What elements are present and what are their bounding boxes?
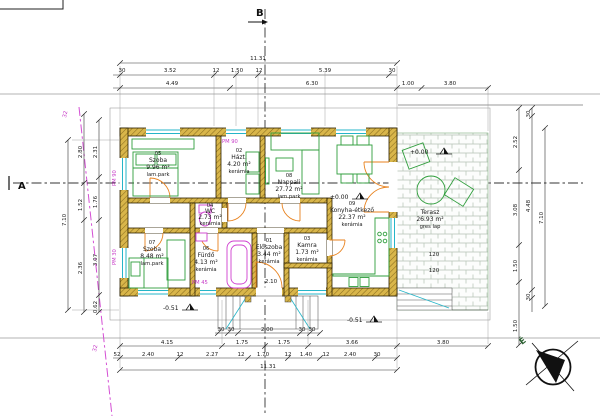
terrace-steps xyxy=(397,288,452,310)
level-front: -0.51 xyxy=(163,305,179,312)
room-label-kamra: 03 Kamra 1.73 m² kerámia xyxy=(295,236,319,263)
svg-text:1.73 m²: 1.73 m² xyxy=(295,249,319,256)
section-marker-b: B xyxy=(256,8,264,19)
dim-label: 12 xyxy=(323,352,330,358)
dim-label: 2.40 xyxy=(344,352,357,358)
dim-label: 1.50 xyxy=(513,319,519,332)
pm-label-bottom: PM 45 xyxy=(192,280,208,286)
svg-text:kerámia: kerámia xyxy=(229,168,250,175)
dim-label: 120 xyxy=(429,268,440,274)
level-kitchen: ±0.00 xyxy=(330,194,349,201)
dim-label: 5.39 xyxy=(319,68,332,74)
dim-label: 2.27 xyxy=(206,352,219,358)
dim-label: 11.31 xyxy=(260,364,276,370)
boundary-dim-upper: 32 xyxy=(62,110,69,118)
dim-label: 7.10 xyxy=(62,213,68,226)
dim-label: 4.15 xyxy=(161,340,174,346)
dim-label: 6.30 xyxy=(306,81,319,87)
svg-text:8.48 m²: 8.48 m² xyxy=(140,253,164,260)
svg-text:Házt.: Házt. xyxy=(231,154,247,161)
washbasin-icon xyxy=(196,233,207,241)
room-label-nappali: 08 Nappali 27.72 m² lam.park xyxy=(275,173,303,200)
dim-label: 1.76 xyxy=(93,195,99,208)
dim-label: 30 xyxy=(299,327,306,333)
dim-label: 0.62 xyxy=(93,301,99,313)
dim-label: 12 xyxy=(256,68,263,74)
dim-label: 30 xyxy=(374,352,381,358)
svg-text:lam.park: lam.park xyxy=(141,261,164,267)
svg-text:kerámia: kerámia xyxy=(297,256,318,263)
tv-cabinet-icon xyxy=(266,158,270,184)
dim-label: 4.48 xyxy=(526,199,532,212)
door-utility-icon xyxy=(228,203,246,221)
kitchen-counter-icon xyxy=(333,218,389,287)
dim-label: 11.31 xyxy=(250,56,266,62)
dim-label: 30 xyxy=(119,68,126,74)
svg-text:Fürdő: Fürdő xyxy=(198,252,215,259)
dim-label: 2.80 xyxy=(78,145,84,158)
pm-label-left-upper: PM 90 xyxy=(112,170,118,186)
dim-label: 1.75 xyxy=(278,340,291,346)
door-living-icon xyxy=(282,203,300,221)
dim-label: 3.08 xyxy=(513,203,519,216)
dim-label: 30 xyxy=(218,327,225,333)
site-lines xyxy=(0,0,600,338)
boundary-dim-lower: 32 xyxy=(92,344,99,352)
dim-label: 2.52 xyxy=(513,136,519,148)
dim-label: 1.00 xyxy=(402,81,415,87)
svg-text:Konyha-étkező: Konyha-étkező xyxy=(330,207,374,214)
level-symbol-icon xyxy=(352,193,368,199)
dim-label: 30 xyxy=(309,327,316,333)
dim-label: 3.80 xyxy=(444,81,457,87)
dim-label: 2.40 xyxy=(142,352,155,358)
svg-text:lam.park: lam.park xyxy=(278,194,301,200)
svg-text:4.20 m²: 4.20 m² xyxy=(227,161,251,168)
dim-label: 1.40 xyxy=(300,352,313,358)
dim-label: 30 xyxy=(228,327,235,333)
svg-text:9.96 m²: 9.96 m² xyxy=(146,164,170,171)
pm-label-left-lower: PM 30 xyxy=(112,249,118,265)
dim-label: 7.10 xyxy=(539,211,545,224)
dim-label: 3.07 xyxy=(93,253,99,266)
svg-text:Előszoba: Előszoba xyxy=(256,244,283,251)
dims-top: 11.31 30 3.52 12 1.50 12 5.39 30 4.49 6.… xyxy=(119,56,457,87)
entrance-steps xyxy=(218,296,318,329)
door-terrace-icon xyxy=(364,162,389,212)
property-boundary-line: 32 32 xyxy=(62,107,112,416)
room-label-szoba1: 05 Szoba 9.96 m² lam.park xyxy=(146,151,170,178)
dim-label: 120 xyxy=(429,252,440,258)
svg-text:kerámia: kerámia xyxy=(200,220,221,227)
room-label-furdo: 06 Fürdő 4.13 m² kerámia xyxy=(194,246,218,273)
wall-kamra-bottom xyxy=(284,263,332,268)
dimension-lines xyxy=(68,63,583,370)
level-symbol-icon xyxy=(366,316,382,322)
room-label-konyha: 09 Konyha-étkező 22.37 m² kerámia xyxy=(330,201,374,228)
dim-label: 12 xyxy=(177,352,184,358)
wall-int-1 xyxy=(216,136,221,203)
svg-text:2.73 m²: 2.73 m² xyxy=(198,214,222,221)
svg-text:27.72 m²: 27.72 m² xyxy=(275,186,303,193)
section-marker-a: A xyxy=(18,181,26,192)
dim-label: 1.52 xyxy=(78,199,84,211)
dim-label: 1.50 xyxy=(231,68,244,74)
svg-text:Nappali: Nappali xyxy=(278,179,301,186)
svg-text:kerámia: kerámia xyxy=(259,258,280,265)
dims-bottom: 30 30 2.00 30 30 4.15 1.75 1.75 3.66 3.8… xyxy=(114,327,450,370)
room-label-eloszoba: 01 Előszoba 3.44 m² kerámia xyxy=(256,238,283,265)
dining-table-icon xyxy=(337,136,372,183)
dim-label: 1.70 xyxy=(257,352,270,358)
dim-label: 2.00 xyxy=(261,327,274,333)
svg-text:3.44 m²: 3.44 m² xyxy=(257,251,281,258)
dim-label: 30 xyxy=(389,68,396,74)
dim-label: 12 xyxy=(213,68,220,74)
dim-label: 4.49 xyxy=(166,81,179,87)
pm-label-top: PM 90 xyxy=(222,139,238,145)
dim-label: 1.75 xyxy=(236,340,249,346)
svg-text:26.93 m²: 26.93 m² xyxy=(416,216,444,223)
svg-text:22.37 m²: 22.37 m² xyxy=(338,214,366,221)
svg-text:lam.park: lam.park xyxy=(147,172,170,178)
dim-label: 3.80 xyxy=(437,340,450,346)
level-symbol-icon xyxy=(182,304,198,310)
floor-plan-sheet: 32 32 B A xyxy=(0,0,600,416)
svg-text:Szoba: Szoba xyxy=(149,157,167,164)
svg-text:kerámia: kerámia xyxy=(196,266,217,273)
dim-label: 12 xyxy=(285,352,292,358)
room-label-szoba2: 07 Szoba 8.48 m² lam.park xyxy=(140,240,164,267)
dim-label: 2.10 xyxy=(265,279,278,285)
level-right: -0.51 xyxy=(347,317,363,324)
svg-text:Kamra: Kamra xyxy=(297,242,317,249)
door-bedroom1-icon xyxy=(150,178,170,198)
svg-text:gres lap: gres lap xyxy=(420,224,441,230)
dim-label: 1.50 xyxy=(513,259,519,272)
north-compass: É xyxy=(516,334,578,391)
dim-label: 2.36 xyxy=(78,261,84,274)
dims-left: 7.10 2.80 1.52 2.36 2.31 1.76 3.07 0.62 xyxy=(62,145,99,313)
dim-label: 12 xyxy=(238,352,245,358)
dim-label: 30 xyxy=(526,110,532,117)
dim-label: 52 xyxy=(114,352,121,358)
level-terrace: +0.00 xyxy=(410,149,429,156)
floor-plan-drawing: 32 32 B A xyxy=(0,0,600,416)
wall-int-2 xyxy=(260,136,265,203)
svg-text:Terasz: Terasz xyxy=(420,209,440,216)
svg-text:kerámia: kerámia xyxy=(342,221,363,228)
svg-text:Szoba: Szoba xyxy=(143,246,161,253)
dim-label: 3.66 xyxy=(346,340,359,346)
dim-label: 3.52 xyxy=(164,68,176,74)
dim-label: 30 xyxy=(526,293,532,300)
svg-text:4.13 m²: 4.13 m² xyxy=(194,259,218,266)
dim-label: 2.31 xyxy=(93,146,99,158)
